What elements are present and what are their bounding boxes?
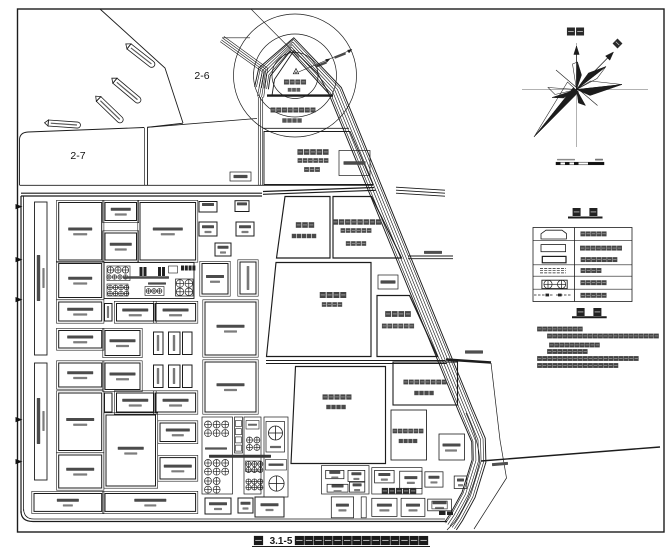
svg-text:2-7: 2-7 xyxy=(70,150,85,162)
svg-text:3.1-5: 3.1-5 xyxy=(270,536,293,547)
svg-text:2-6: 2-6 xyxy=(194,70,209,82)
